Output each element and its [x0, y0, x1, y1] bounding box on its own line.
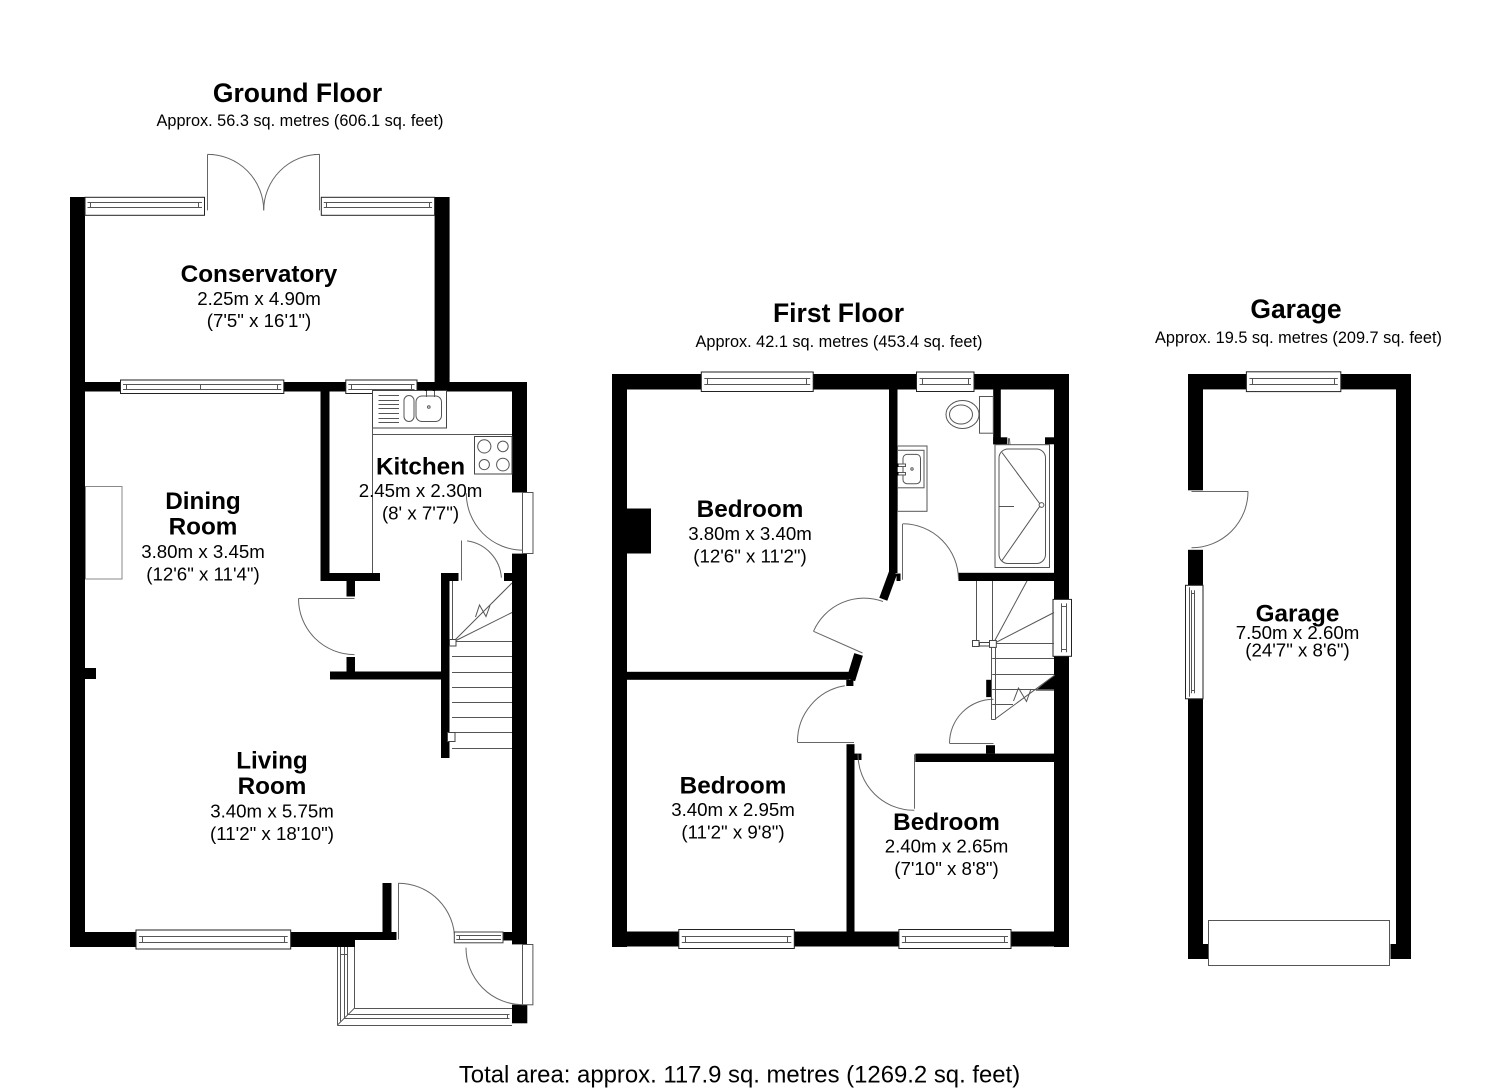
svg-text:Garage: Garage: [1250, 294, 1341, 324]
svg-text:Approx. 56.3 sq. metres (606.1: Approx. 56.3 sq. metres (606.1 sq. feet): [157, 112, 444, 130]
svg-text:2.25m x 4.90m: 2.25m x 4.90m: [197, 288, 321, 309]
svg-text:3.80m x 3.40m: 3.80m x 3.40m: [688, 523, 812, 544]
svg-text:Dining: Dining: [165, 488, 241, 515]
svg-text:(12'6" x 11'2"): (12'6" x 11'2"): [693, 546, 807, 567]
svg-text:Room: Room: [169, 514, 238, 541]
svg-text:3.40m x 5.75m: 3.40m x 5.75m: [210, 801, 334, 822]
svg-text:Conservatory: Conservatory: [181, 261, 338, 288]
svg-text:(7'5" x 16'1"): (7'5" x 16'1"): [207, 310, 312, 331]
svg-text:Approx. 19.5 sq. metres (209.7: Approx. 19.5 sq. metres (209.7 sq. feet): [1155, 329, 1442, 347]
svg-text:Ground Floor: Ground Floor: [213, 78, 382, 108]
svg-text:Bedroom: Bedroom: [680, 773, 787, 800]
svg-text:Room: Room: [238, 773, 307, 800]
svg-text:3.40m x 2.95m: 3.40m x 2.95m: [671, 799, 795, 820]
svg-text:(24'7" x 8'6"): (24'7" x 8'6"): [1245, 640, 1350, 661]
svg-text:Total area: approx. 117.9 sq.: Total area: approx. 117.9 sq. metres (12…: [459, 1062, 1020, 1089]
svg-text:3.80m x 3.45m: 3.80m x 3.45m: [141, 541, 265, 562]
svg-text:Approx. 42.1 sq. metres (453.4: Approx. 42.1 sq. metres (453.4 sq. feet): [696, 333, 983, 351]
svg-text:(11'2" x 18'10"): (11'2" x 18'10"): [210, 823, 334, 844]
svg-text:(12'6" x 11'4"): (12'6" x 11'4"): [146, 564, 260, 585]
svg-text:Living: Living: [236, 748, 308, 775]
svg-text:2.40m x 2.65m: 2.40m x 2.65m: [885, 836, 1009, 857]
svg-text:(7'10" x 8'8"): (7'10" x 8'8"): [894, 858, 999, 879]
svg-text:First Floor: First Floor: [773, 298, 904, 328]
svg-text:Kitchen: Kitchen: [376, 454, 465, 481]
svg-text:(8' x 7'7"): (8' x 7'7"): [382, 503, 459, 524]
svg-text:Bedroom: Bedroom: [893, 809, 1000, 836]
svg-text:Bedroom: Bedroom: [697, 496, 804, 523]
svg-text:2.45m x 2.30m: 2.45m x 2.30m: [359, 480, 483, 501]
svg-text:(11'2" x 9'8"): (11'2" x 9'8"): [681, 822, 784, 843]
